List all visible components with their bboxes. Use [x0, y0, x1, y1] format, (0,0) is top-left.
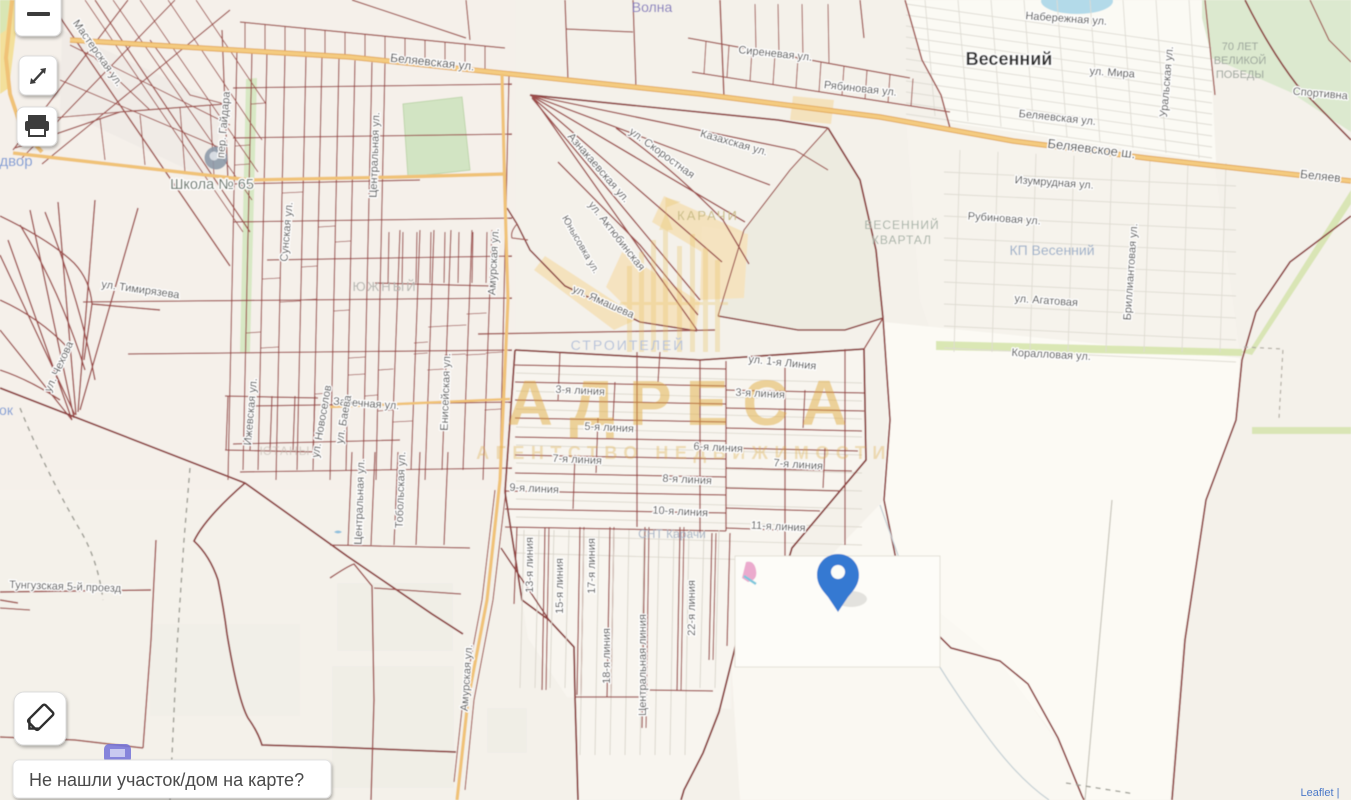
svg-text:Школа № 65: Школа № 65: [170, 177, 254, 193]
svg-text:Центральная линия: Центральная линия: [637, 614, 649, 716]
svg-text:Волна: Волна: [632, 0, 673, 15]
svg-text:22-я линия: 22-я линия: [686, 580, 698, 636]
svg-text:ВЕСЕННИЙ: ВЕСЕННИЙ: [864, 217, 939, 232]
svg-text:70 ЛЕТ: 70 ЛЕТ: [1222, 41, 1259, 53]
svg-text:КВАРТАЛ: КВАРТАЛ: [872, 233, 932, 247]
svg-text:Весенний: Весенний: [966, 49, 1053, 69]
svg-text:СТРОИТЕЛЕЙ: СТРОИТЕЛЕЙ: [571, 336, 686, 353]
svg-text:ЮТАНЫ: ЮТАНЫ: [260, 444, 311, 458]
svg-text:15-я линия: 15-я линия: [554, 558, 566, 614]
svg-text:двор: двор: [0, 153, 33, 170]
svg-text:АДРЕСА: АДРЕСА: [507, 367, 861, 439]
svg-text:ок: ок: [0, 402, 14, 418]
svg-text:КП Весенний: КП Весенний: [1009, 242, 1094, 258]
svg-text:ПОБЕДЫ: ПОБЕДЫ: [1216, 69, 1264, 81]
svg-text:Leaflet |: Leaflet |: [1301, 787, 1340, 799]
svg-text:АГЕНТСТВО НЕДВИЖИМОСТИ: АГЕНТСТВО НЕДВИЖИМОСТИ: [476, 443, 892, 463]
svg-text:18-я линия: 18-я линия: [601, 628, 613, 684]
svg-text:17-я линия: 17-я линия: [586, 538, 598, 594]
svg-text:ВЕЛИКОЙ: ВЕЛИКОЙ: [1214, 54, 1267, 67]
svg-text:КАРАЧИ: КАРАЧИ: [677, 208, 739, 223]
svg-text:13-я линия: 13-я линия: [524, 537, 536, 593]
svg-text:Не нашли участок/дом на карте?: Не нашли участок/дом на карте?: [29, 770, 304, 790]
svg-text:СНТ Карачи: СНТ Карачи: [638, 527, 706, 541]
svg-text:ЮЖНЫЙ: ЮЖНЫЙ: [352, 279, 417, 294]
